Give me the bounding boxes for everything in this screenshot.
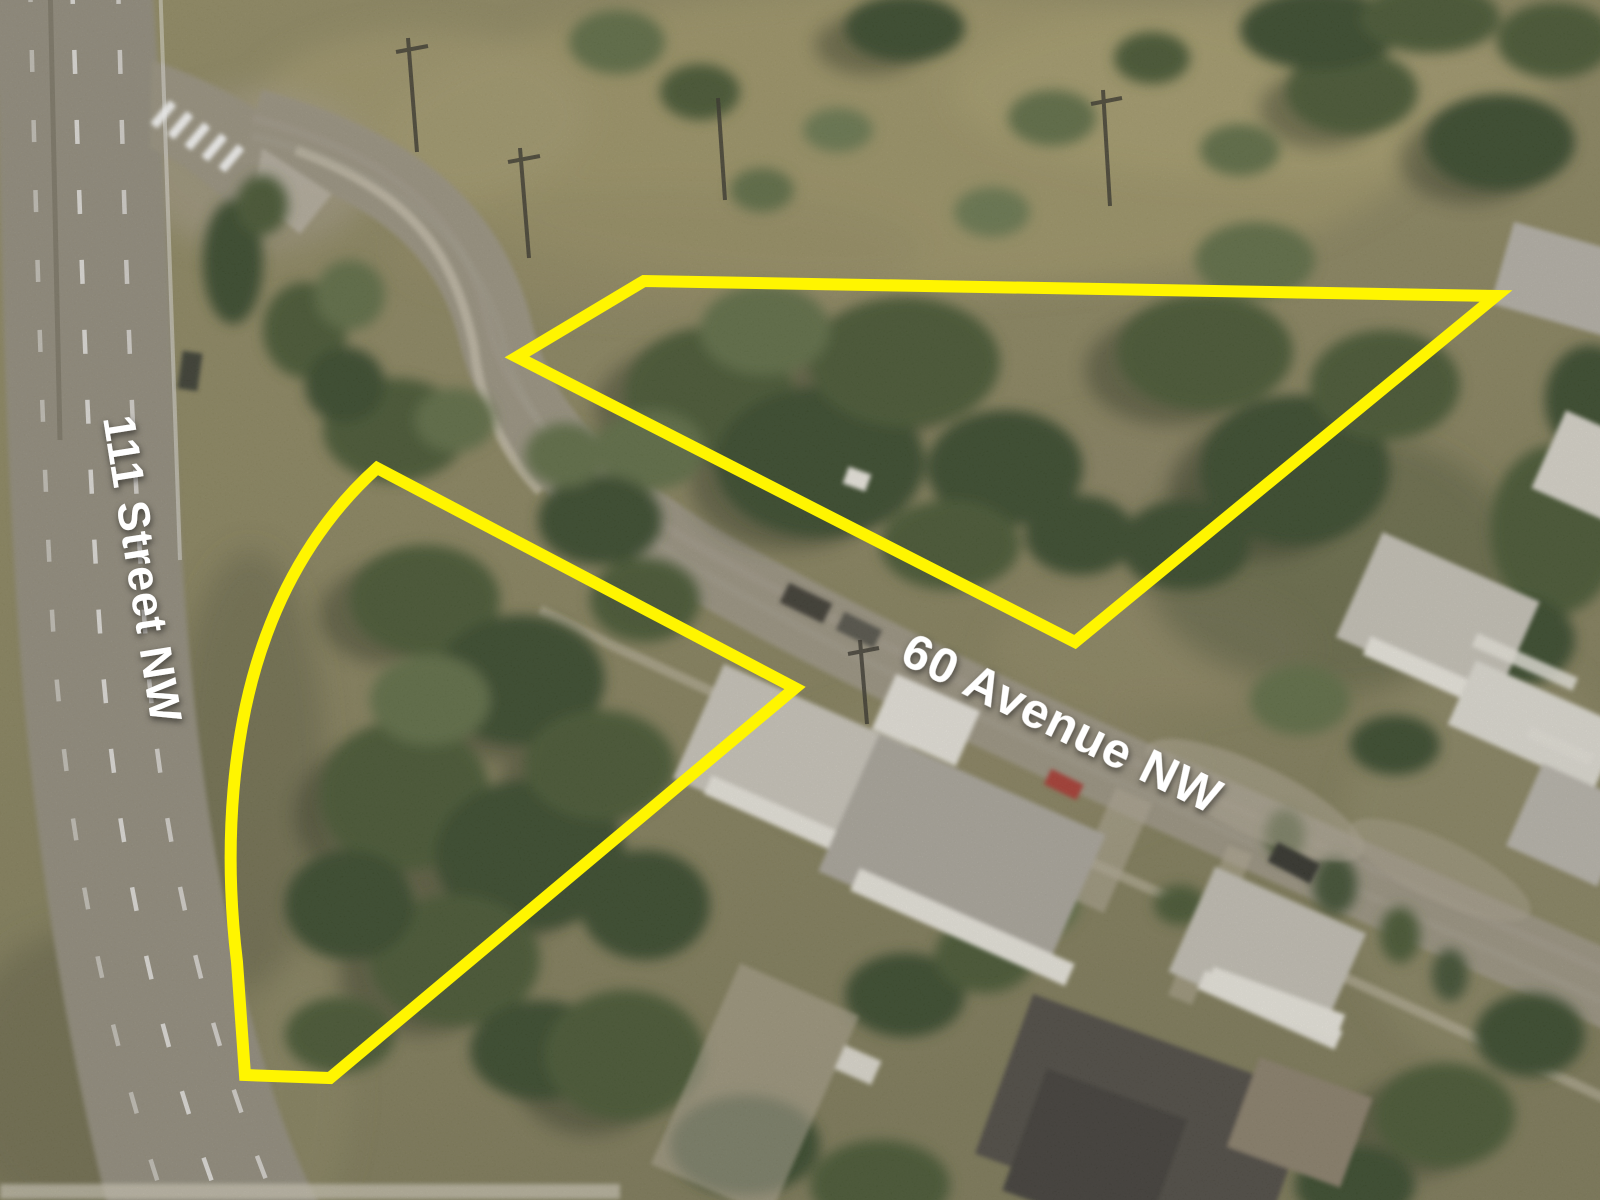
map-canvas: 111 Street NW 60 Avenue NW (0, 0, 1600, 1200)
aerial-map-stage: 111 Street NW 60 Avenue NW (0, 0, 1600, 1200)
